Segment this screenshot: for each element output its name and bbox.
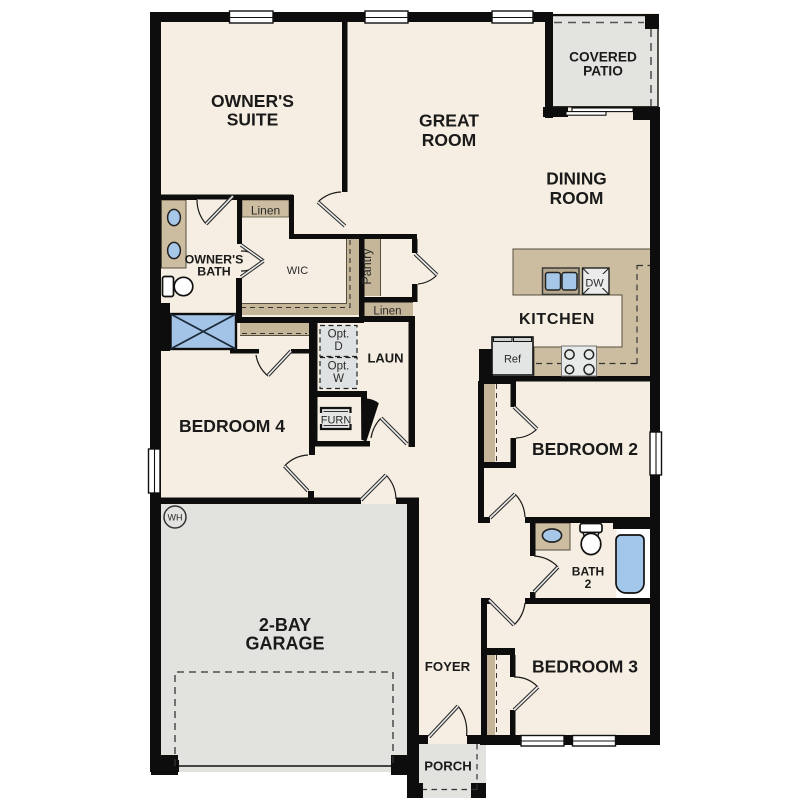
svg-text:W: W — [333, 373, 344, 385]
svg-text:BATH: BATH — [197, 265, 231, 279]
svg-text:Linen: Linen — [251, 204, 280, 218]
svg-text:PATIO: PATIO — [583, 64, 623, 79]
svg-text:ROOM: ROOM — [550, 188, 604, 208]
svg-text:FURN: FURN — [321, 415, 352, 427]
svg-text:WH: WH — [168, 513, 183, 523]
svg-text:OWNER'S: OWNER'S — [211, 91, 294, 111]
svg-text:Opt.: Opt. — [328, 329, 350, 341]
svg-text:DW: DW — [585, 278, 604, 290]
svg-text:WIC: WIC — [287, 265, 308, 277]
svg-text:Opt.: Opt. — [328, 361, 350, 373]
svg-text:BEDROOM 3: BEDROOM 3 — [532, 657, 638, 677]
svg-text:Linen: Linen — [373, 306, 401, 318]
svg-text:SUITE: SUITE — [227, 110, 279, 130]
svg-text:GREAT: GREAT — [419, 111, 479, 131]
svg-text:2-BAY: 2-BAY — [259, 615, 311, 635]
svg-text:Pantry: Pantry — [360, 248, 374, 285]
svg-text:BEDROOM 4: BEDROOM 4 — [179, 416, 285, 436]
svg-text:BEDROOM 2: BEDROOM 2 — [532, 439, 638, 459]
svg-text:KITCHEN: KITCHEN — [519, 311, 595, 328]
svg-text:FOYER: FOYER — [425, 659, 471, 674]
svg-text:ROOM: ROOM — [422, 130, 476, 150]
svg-text:COVERED: COVERED — [569, 50, 637, 65]
svg-text:Ref: Ref — [504, 354, 522, 366]
svg-text:2: 2 — [585, 577, 592, 591]
svg-text:GARAGE: GARAGE — [245, 634, 324, 654]
svg-text:D: D — [334, 341, 342, 353]
svg-text:PORCH: PORCH — [424, 759, 472, 774]
svg-text:LAUN: LAUN — [367, 351, 403, 366]
svg-text:DINING: DINING — [546, 169, 606, 189]
